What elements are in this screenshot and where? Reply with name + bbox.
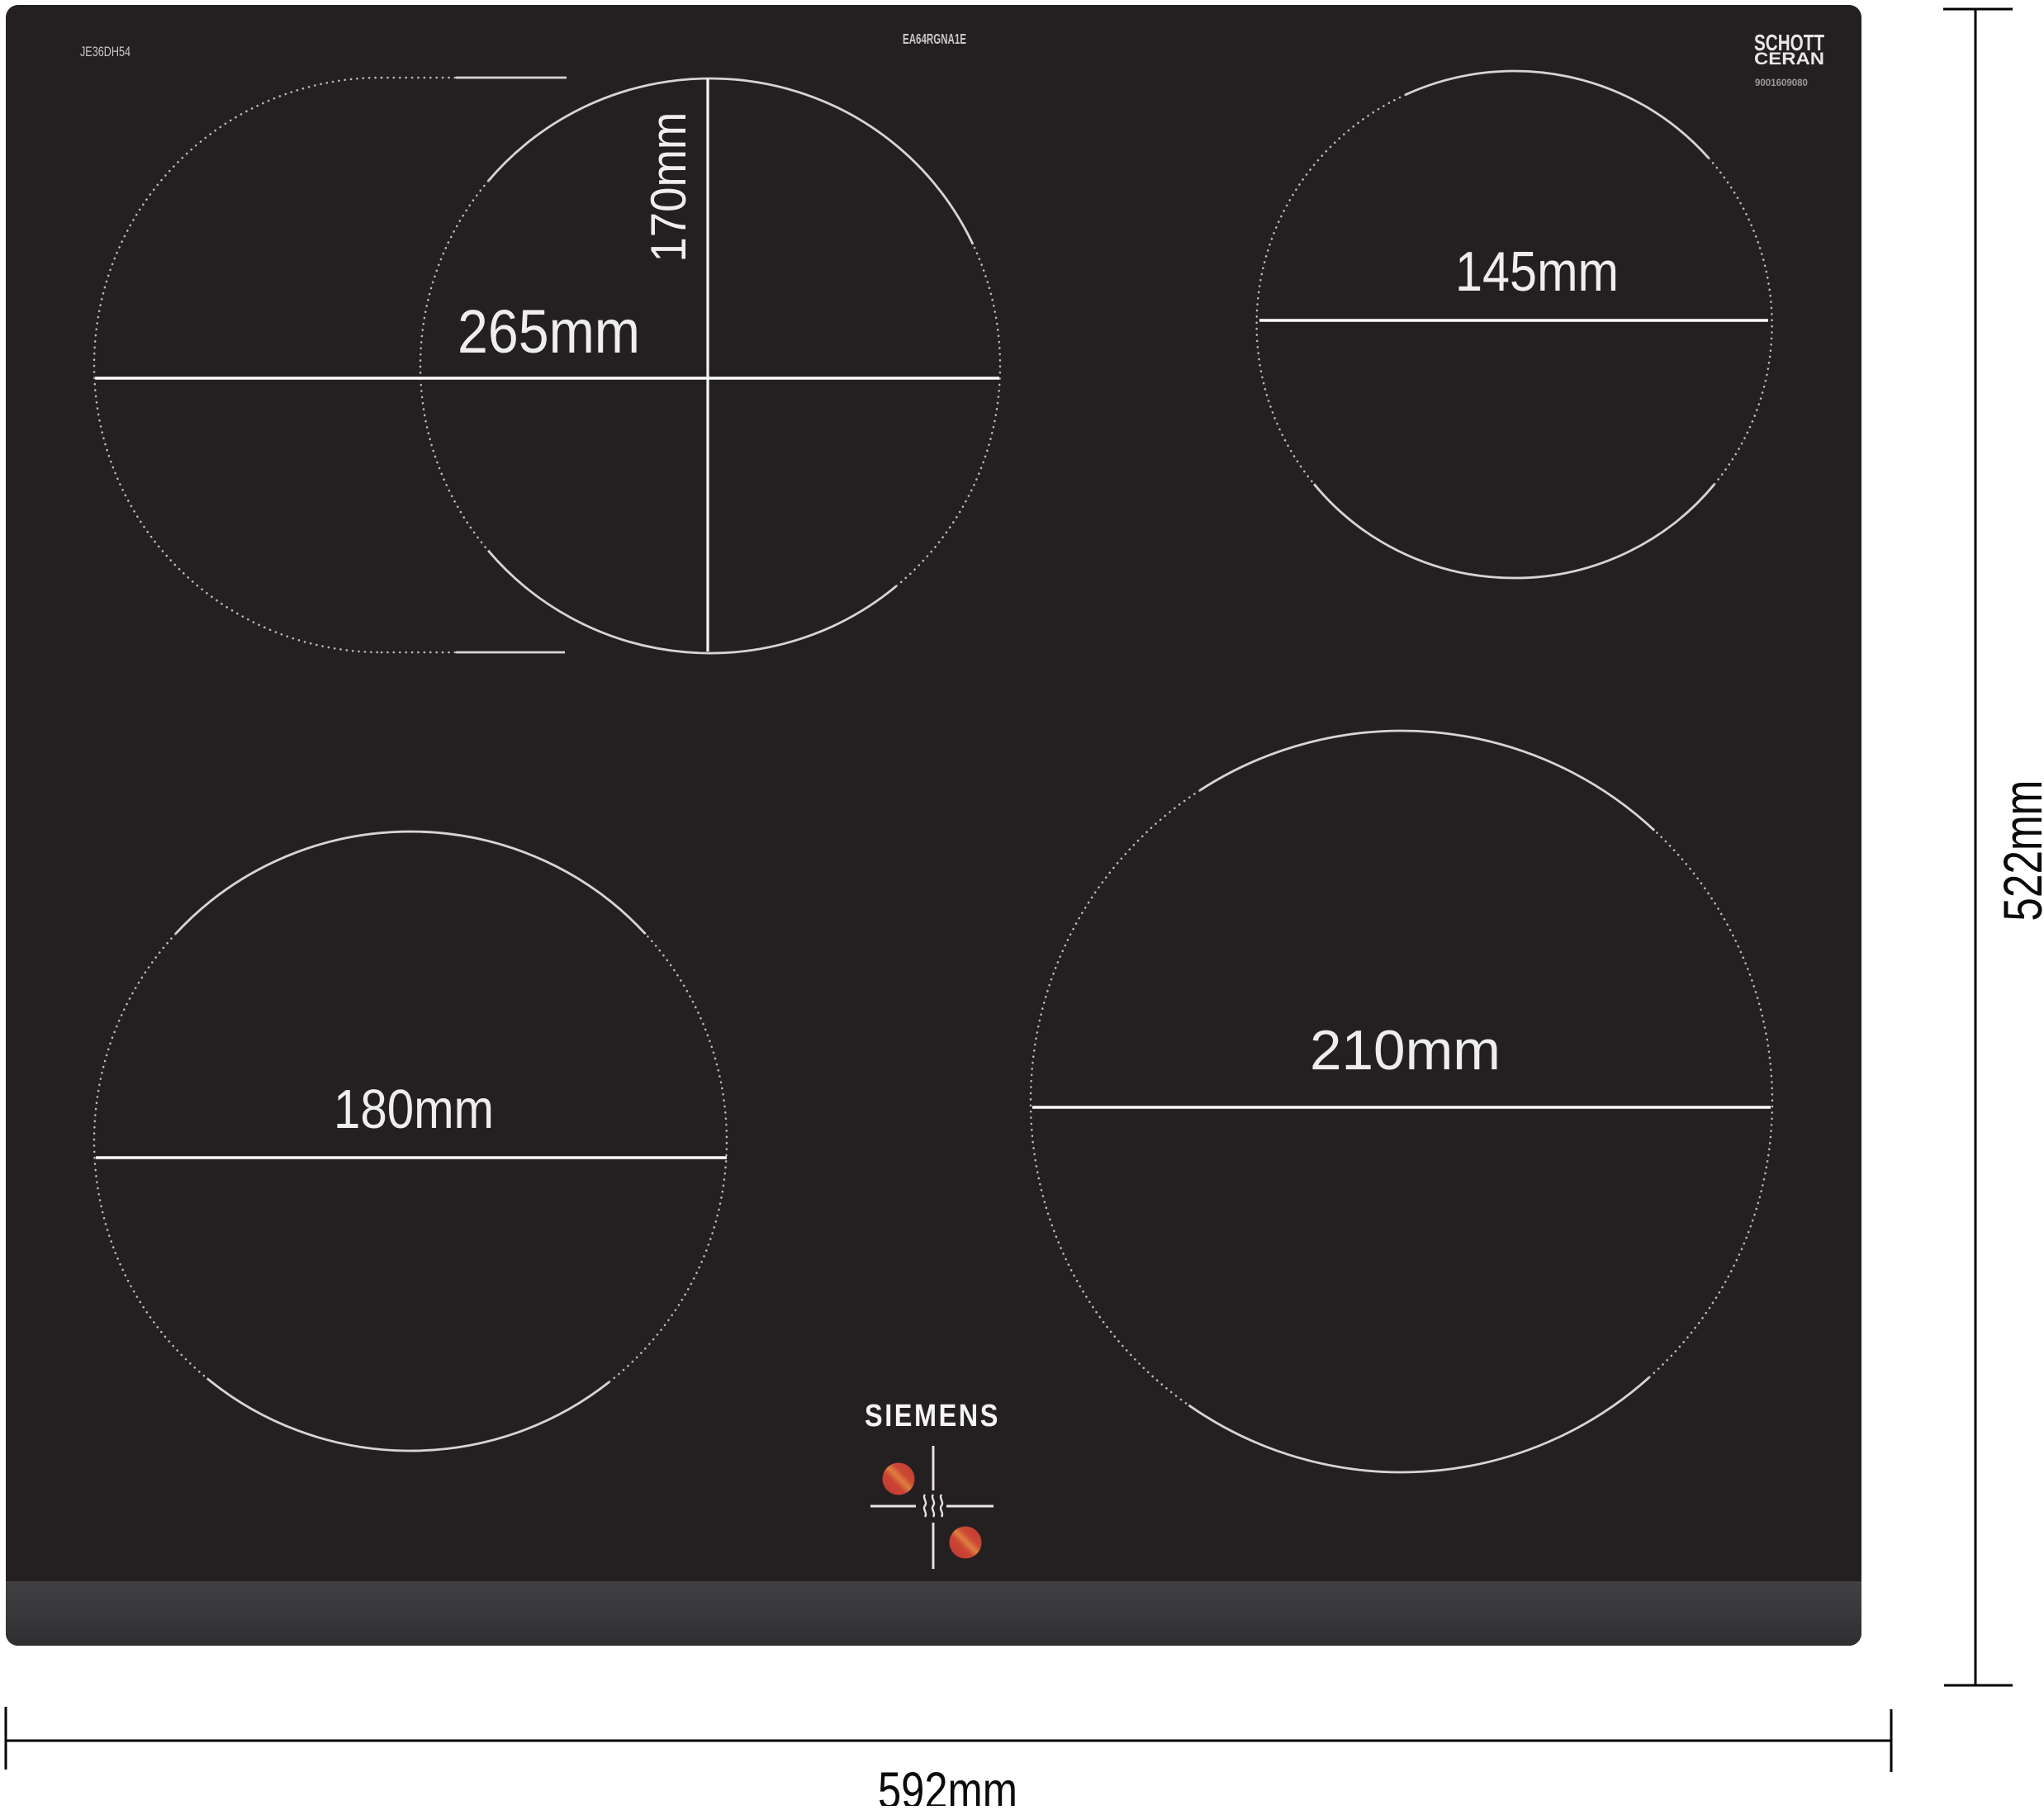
svg-text:9001609080: 9001609080 <box>1755 78 1808 88</box>
svg-text:SIEMENS: SIEMENS <box>865 1399 1000 1433</box>
svg-text:180mm: 180mm <box>334 1078 494 1140</box>
svg-text:522mm: 522mm <box>1992 780 2044 922</box>
svg-text:JE36DH54: JE36DH54 <box>80 44 130 59</box>
svg-text:210mm: 210mm <box>1310 1019 1501 1082</box>
svg-text:170mm: 170mm <box>641 112 696 263</box>
svg-text:265mm: 265mm <box>458 297 640 366</box>
svg-text:592mm: 592mm <box>878 1762 1017 1806</box>
svg-text:145mm: 145mm <box>1455 240 1619 303</box>
svg-text:EA64RGNA1E: EA64RGNA1E <box>903 31 966 47</box>
svg-text:CERAN: CERAN <box>1754 50 1824 69</box>
